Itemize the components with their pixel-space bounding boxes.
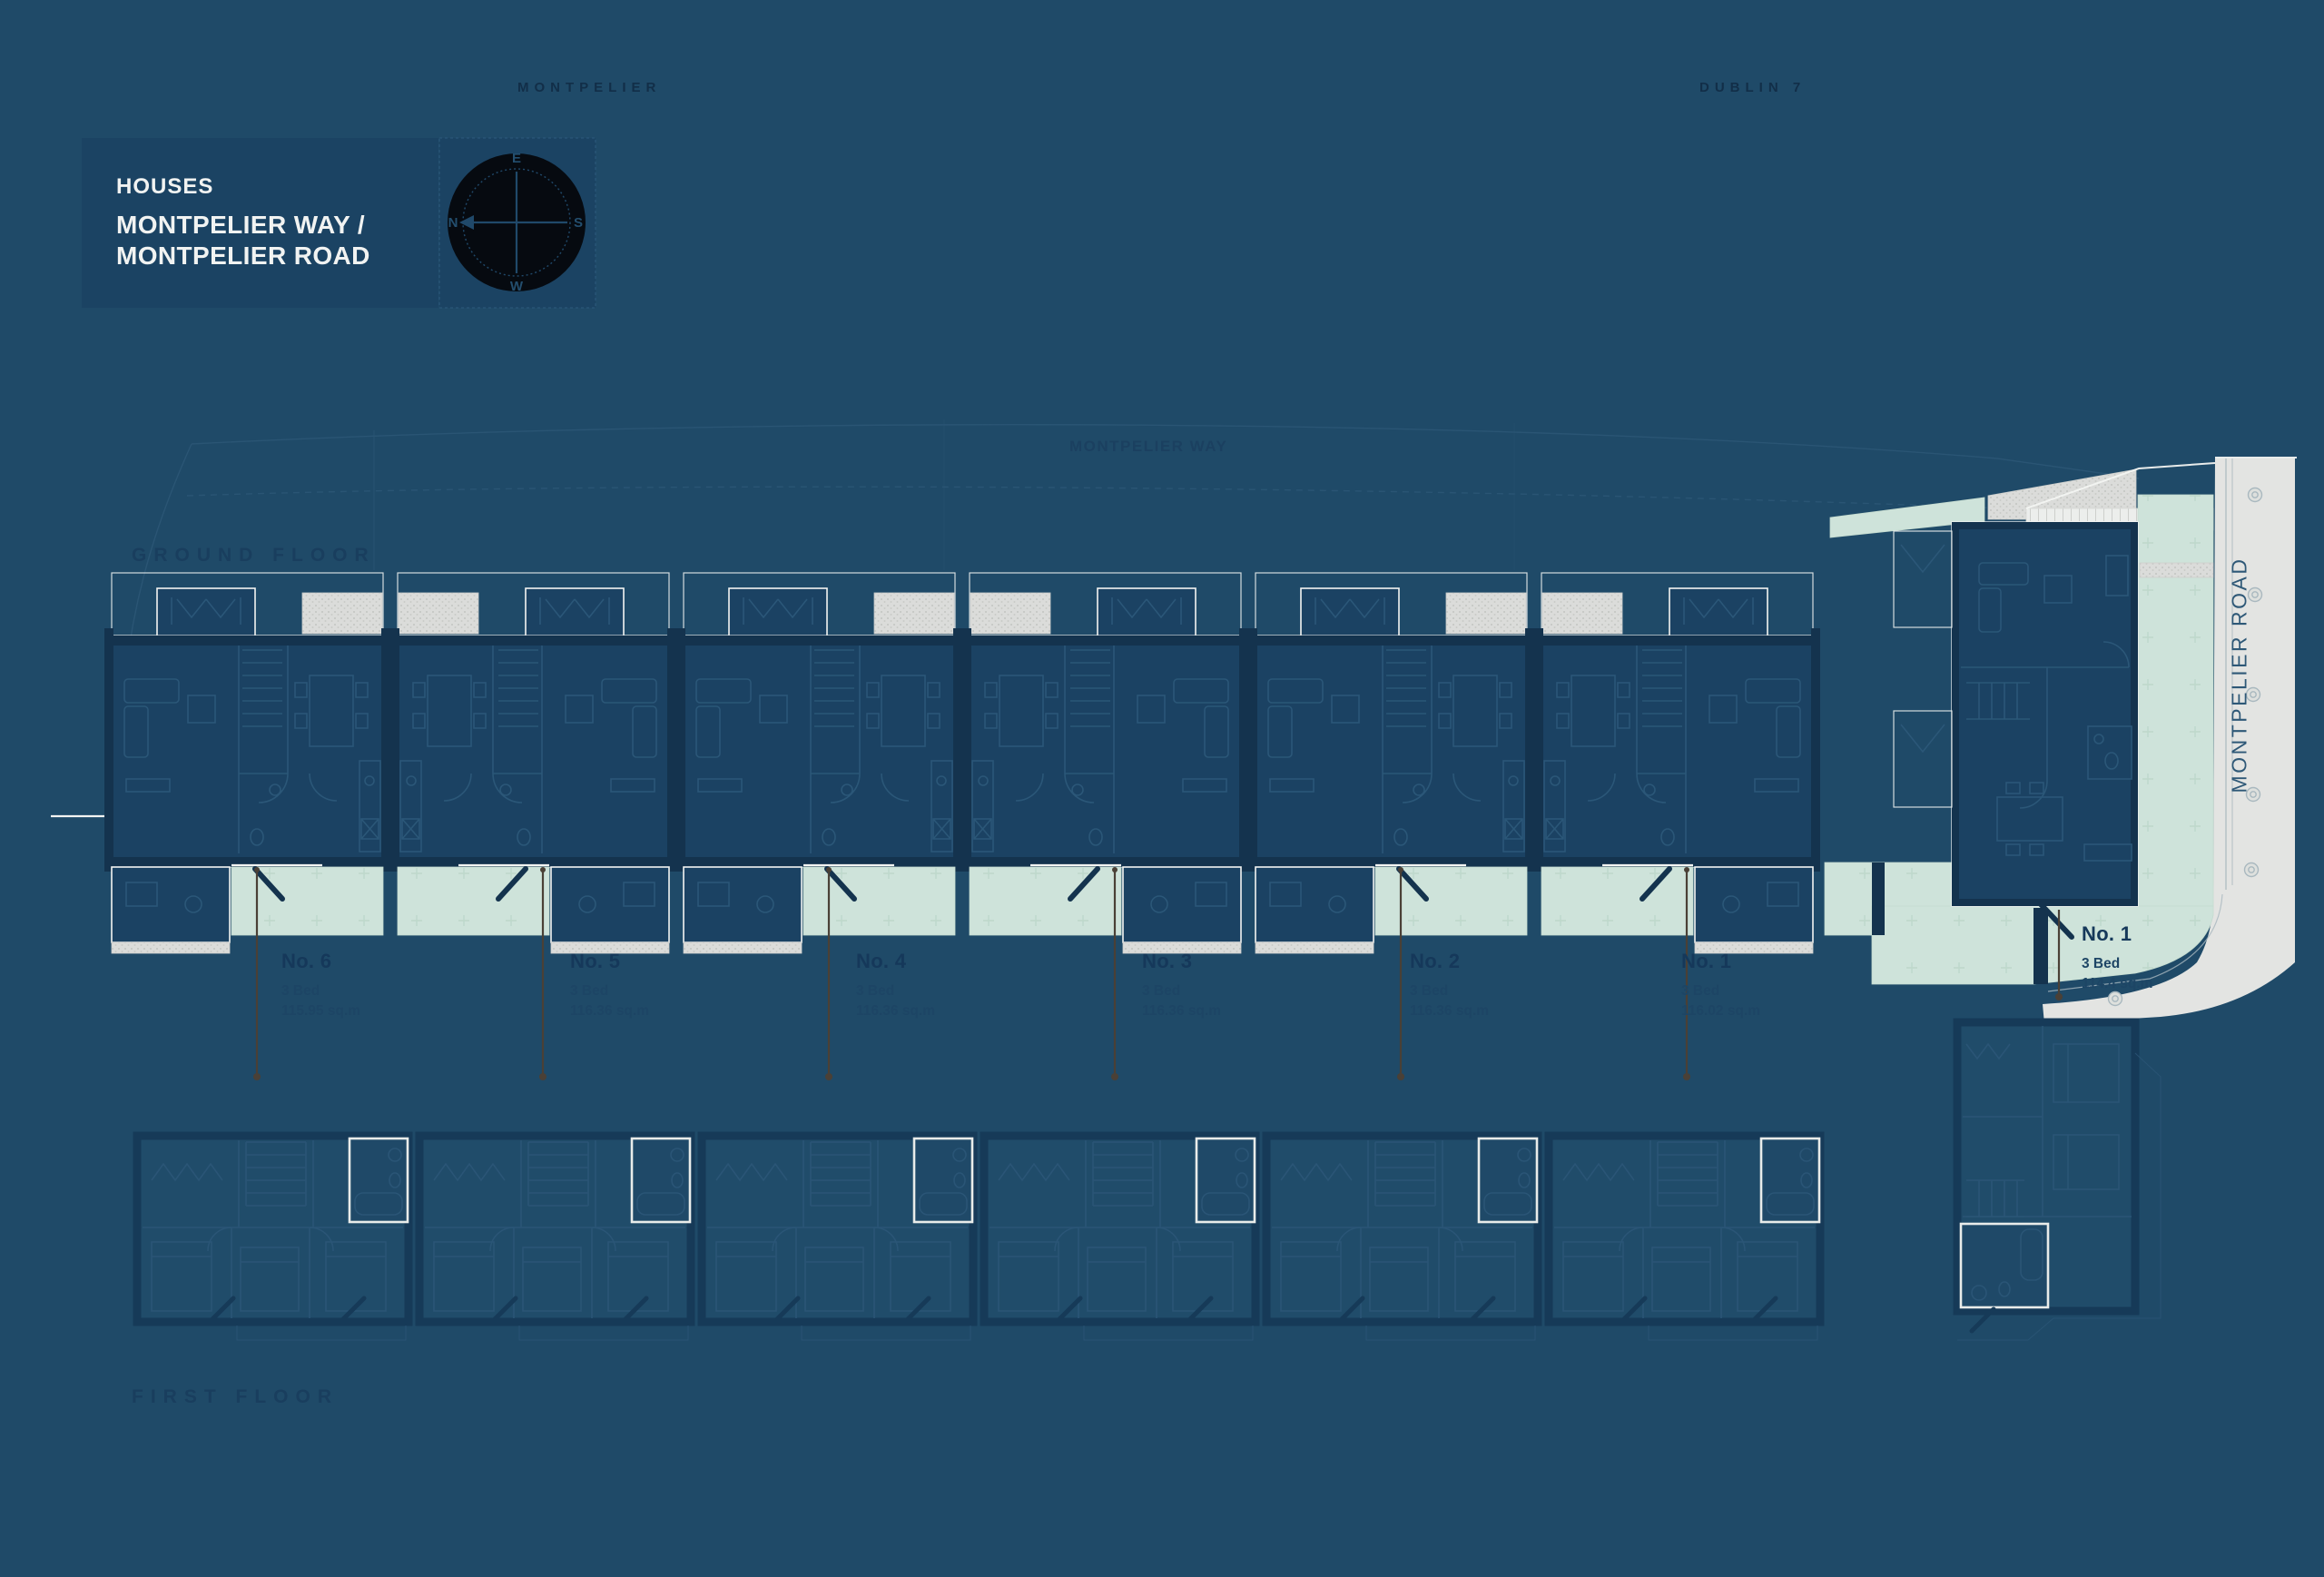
house-area: 116.36 sq.m	[1410, 1001, 1489, 1021]
house-number: No. 1	[1681, 950, 1760, 973]
house-labels: No. 63 Bed115.95 sq.mNo. 53 Bed116.36 sq…	[0, 0, 2324, 1577]
house-beds: 3 Bed	[1410, 981, 1489, 1001]
house-beds: 3 Bed	[281, 981, 360, 1001]
house-beds: 3 Bed	[856, 981, 935, 1001]
house-label-no-2: No. 23 Bed116.36 sq.m	[1410, 950, 1489, 1021]
house-area: 116.36 sq.m	[570, 1001, 649, 1021]
house-label-no-5: No. 53 Bed116.36 sq.m	[570, 950, 649, 1021]
house-area: 116.36 sq.m	[856, 1001, 935, 1021]
house-beds: 3 Bed	[1681, 981, 1760, 1001]
house-label-corner-no-1: No. 1 3 Bed 114.4 sq.m	[2082, 922, 2152, 994]
house-number: No. 2	[1410, 950, 1489, 973]
house-number: No. 3	[1142, 950, 1221, 973]
house-area: 114.4 sq.m	[2082, 974, 2152, 994]
house-label-no-1: No. 13 Bed116.02 sq.m	[1681, 950, 1760, 1021]
house-area: 116.36 sq.m	[1142, 1001, 1221, 1021]
site-plan-page: { "project": { "type_label": "HOUSES", "…	[0, 0, 2324, 1577]
house-number: No. 6	[281, 950, 360, 973]
house-area: 116.02 sq.m	[1681, 1001, 1760, 1021]
house-beds: 3 Bed	[2082, 954, 2152, 974]
house-label-no-6: No. 63 Bed115.95 sq.m	[281, 950, 360, 1021]
house-area: 115.95 sq.m	[281, 1001, 360, 1021]
house-label-no-4: No. 43 Bed116.36 sq.m	[856, 950, 935, 1021]
house-beds: 3 Bed	[1142, 981, 1221, 1001]
house-label-no-3: No. 33 Bed116.36 sq.m	[1142, 950, 1221, 1021]
house-beds: 3 Bed	[570, 981, 649, 1001]
house-number: No. 1	[2082, 922, 2152, 946]
house-number: No. 4	[856, 950, 935, 973]
house-number: No. 5	[570, 950, 649, 973]
